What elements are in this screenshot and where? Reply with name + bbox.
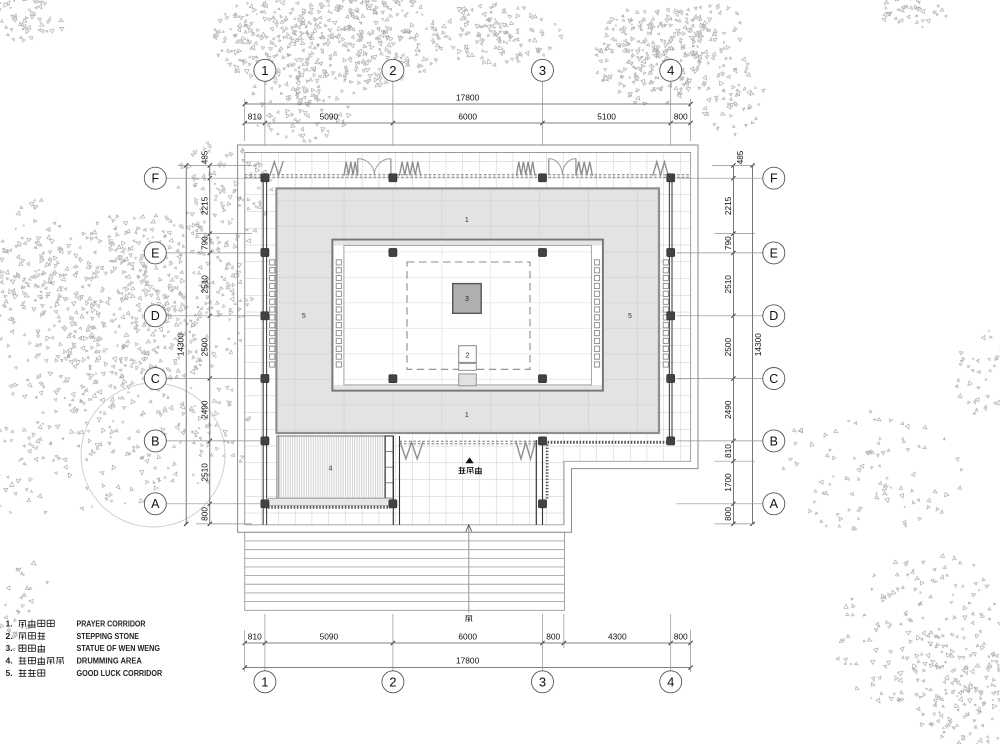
- svg-text:5: 5: [302, 313, 306, 320]
- svg-text:DRUMMING AREA: DRUMMING AREA: [77, 656, 142, 666]
- svg-text:790: 790: [723, 236, 733, 250]
- svg-text:E: E: [770, 246, 778, 260]
- svg-text:5090: 5090: [320, 632, 339, 642]
- svg-text:C: C: [151, 372, 160, 386]
- svg-text:GOOD LUCK CORRIDOR: GOOD LUCK CORRIDOR: [77, 668, 163, 678]
- svg-text:1: 1: [261, 63, 268, 78]
- svg-text:800: 800: [200, 507, 210, 521]
- svg-text:3: 3: [539, 63, 546, 78]
- svg-text:3: 3: [465, 296, 469, 303]
- svg-text:2: 2: [466, 352, 470, 359]
- svg-text:5090: 5090: [320, 112, 339, 122]
- svg-text:2510: 2510: [200, 463, 210, 482]
- svg-text:2510: 2510: [200, 275, 210, 294]
- svg-text:1.: 1.: [6, 618, 13, 628]
- svg-text:4: 4: [329, 466, 333, 473]
- svg-text:1: 1: [465, 217, 469, 224]
- svg-text:485: 485: [200, 150, 210, 164]
- svg-text:3.: 3.: [6, 643, 13, 653]
- svg-text:5100: 5100: [597, 112, 616, 122]
- svg-text:810: 810: [723, 444, 733, 458]
- svg-text:B: B: [151, 434, 159, 448]
- svg-text:2500: 2500: [723, 337, 733, 356]
- svg-text:800: 800: [674, 112, 688, 122]
- svg-text:485: 485: [735, 150, 745, 164]
- svg-text:6000: 6000: [458, 112, 477, 122]
- svg-text:3: 3: [539, 674, 546, 689]
- svg-text:4.: 4.: [6, 656, 13, 666]
- svg-text:14300: 14300: [176, 333, 186, 356]
- svg-text:800: 800: [674, 632, 688, 642]
- svg-text:C: C: [769, 372, 778, 386]
- svg-text:1700: 1700: [723, 473, 733, 492]
- svg-text:2490: 2490: [723, 400, 733, 419]
- svg-text:2490: 2490: [200, 400, 210, 419]
- svg-text:790: 790: [200, 236, 210, 250]
- svg-text:2500: 2500: [200, 337, 210, 356]
- svg-text:F: F: [151, 172, 159, 186]
- svg-text:4300: 4300: [608, 632, 627, 642]
- svg-text:E: E: [151, 246, 159, 260]
- svg-text:D: D: [151, 309, 160, 323]
- svg-text:810: 810: [248, 632, 262, 642]
- svg-text:2510: 2510: [723, 275, 733, 294]
- svg-text:STEPPING STONE: STEPPING STONE: [77, 631, 140, 641]
- svg-text:2215: 2215: [200, 196, 210, 215]
- svg-text:6000: 6000: [458, 632, 477, 642]
- svg-text:5: 5: [628, 313, 632, 320]
- svg-text:4: 4: [667, 63, 674, 78]
- svg-text:14300: 14300: [753, 333, 763, 356]
- svg-text:1: 1: [465, 412, 469, 419]
- svg-text:800: 800: [546, 632, 560, 642]
- svg-text:PRAYER CORRIDOR: PRAYER CORRIDOR: [77, 618, 147, 628]
- svg-text:4: 4: [667, 674, 674, 689]
- svg-text:D: D: [769, 309, 778, 323]
- svg-text:1: 1: [261, 674, 268, 689]
- svg-text:2: 2: [389, 63, 396, 78]
- svg-text:A: A: [770, 497, 779, 511]
- svg-text:17800: 17800: [456, 93, 480, 103]
- svg-text:2: 2: [389, 674, 396, 689]
- svg-text:A: A: [151, 497, 160, 511]
- svg-text:800: 800: [723, 507, 733, 521]
- svg-text:810: 810: [248, 112, 262, 122]
- svg-text:17800: 17800: [456, 656, 480, 666]
- svg-text:F: F: [770, 172, 778, 186]
- svg-text:5.: 5.: [6, 668, 13, 678]
- svg-text:STATUE OF WEN WENG: STATUE OF WEN WENG: [77, 643, 161, 653]
- svg-text:B: B: [770, 434, 778, 448]
- svg-text:2215: 2215: [723, 196, 733, 215]
- svg-text:2.: 2.: [6, 631, 13, 641]
